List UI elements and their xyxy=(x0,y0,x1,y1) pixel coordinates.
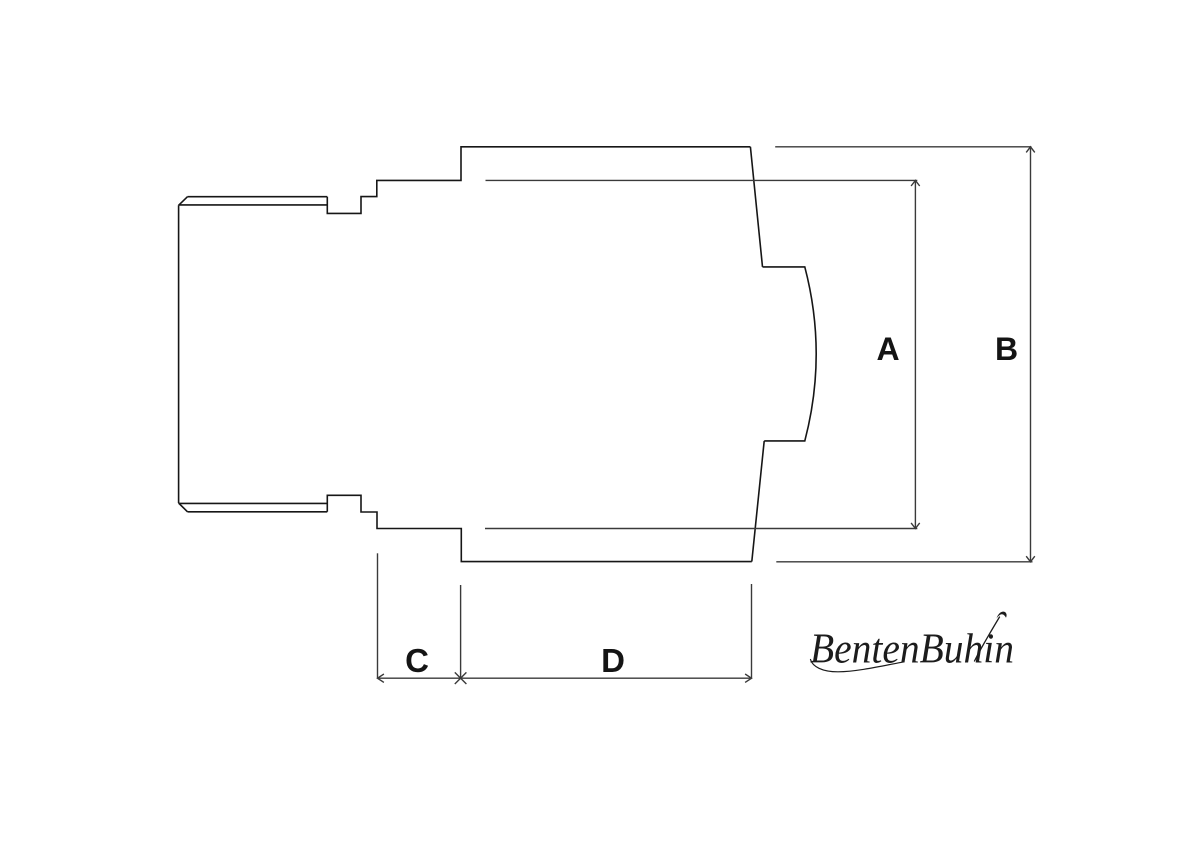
svg-text:B: B xyxy=(995,331,1018,367)
svg-text:D: D xyxy=(601,642,625,679)
svg-text:C: C xyxy=(405,642,429,679)
svg-text:BentenBuhin: BentenBuhin xyxy=(810,627,1014,673)
svg-text:A: A xyxy=(876,331,899,367)
